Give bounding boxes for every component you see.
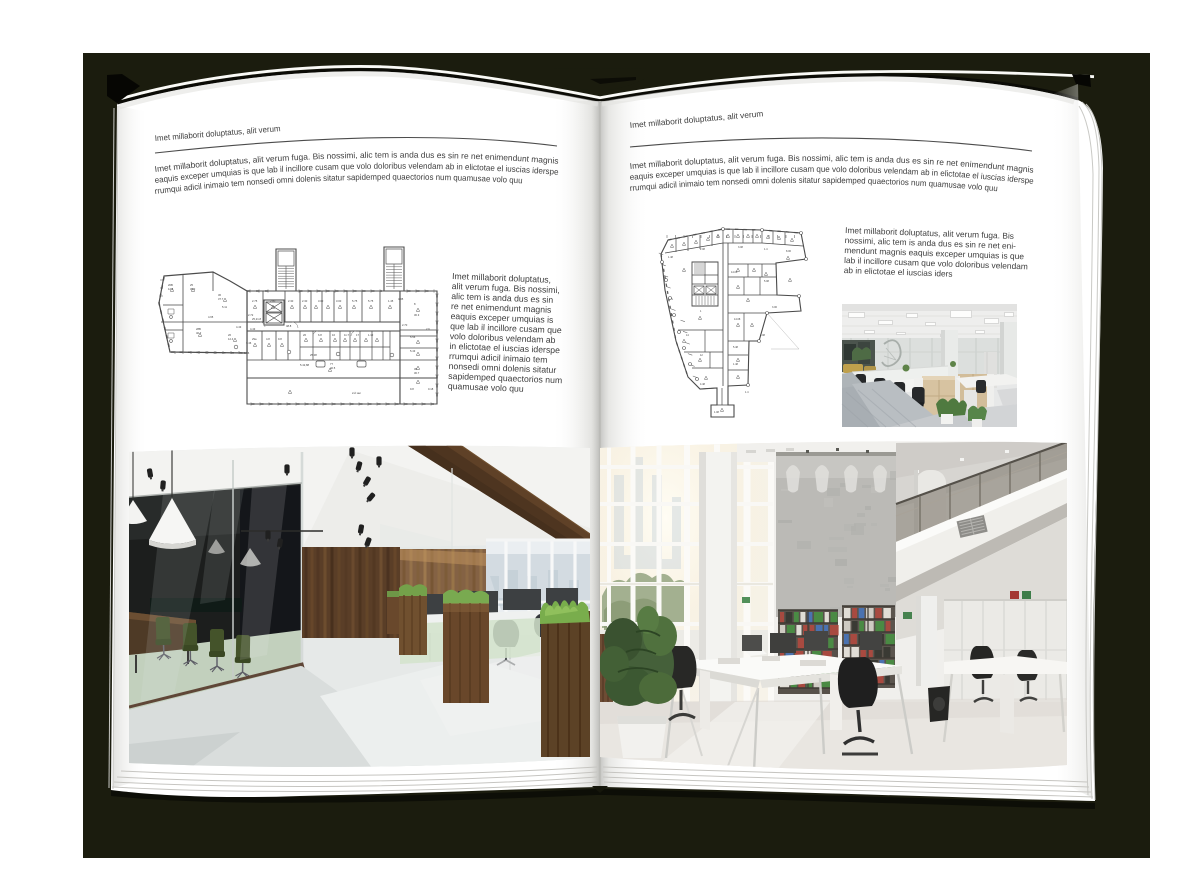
- svg-text:16: 16: [332, 333, 335, 337]
- svg-text:5.08: 5.08: [764, 280, 769, 283]
- svg-text:3.46: 3.46: [246, 341, 252, 345]
- svg-text:2.08: 2.08: [700, 248, 705, 251]
- svg-text:4.43: 4.43: [250, 327, 256, 331]
- svg-text:17: 17: [356, 333, 359, 337]
- svg-text:9.8: 9.8: [278, 337, 282, 341]
- svg-text:2.72: 2.72: [248, 313, 254, 317]
- svg-text:12.4: 12.4: [228, 337, 234, 341]
- svg-text:25.08: 25.08: [310, 353, 317, 357]
- svg-text:2.80: 2.80: [270, 299, 276, 303]
- svg-text:14.06: 14.06: [731, 271, 738, 274]
- svg-text:5.75: 5.75: [352, 299, 358, 303]
- svg-text:3.06: 3.06: [772, 306, 777, 309]
- svg-text:5.43: 5.43: [410, 349, 416, 353]
- svg-text:5.75: 5.75: [368, 299, 374, 303]
- svg-text:1.45: 1.45: [388, 299, 394, 303]
- svg-text:28B: 28B: [196, 327, 201, 331]
- svg-text:4.43: 4.43: [236, 325, 242, 329]
- svg-text:30.3: 30.3: [414, 313, 420, 317]
- svg-text:2.30: 2.30: [288, 299, 294, 303]
- svg-text:11.7: 11.7: [344, 333, 350, 337]
- svg-text:5.56: 5.56: [410, 335, 416, 339]
- svg-text:36: 36: [414, 367, 417, 371]
- svg-text:2.75: 2.75: [252, 299, 258, 303]
- svg-text:30.7: 30.7: [414, 371, 420, 375]
- svg-text:29a: 29a: [252, 337, 257, 341]
- svg-text:25,21.8: 25,21.8: [252, 317, 261, 321]
- svg-text:1.4: 1.4: [764, 248, 768, 251]
- svg-text:30.2: 30.2: [190, 287, 196, 291]
- svg-text:1.08: 1.08: [714, 411, 719, 414]
- svg-text:3.96: 3.96: [244, 351, 250, 355]
- svg-text:26: 26: [303, 333, 306, 337]
- svg-text:40.7: 40.7: [196, 331, 202, 335]
- svg-text:20B: 20B: [168, 283, 173, 287]
- svg-text:37.7: 37.7: [218, 297, 224, 301]
- svg-text:2.70: 2.70: [402, 323, 408, 327]
- svg-text:26: 26: [228, 333, 231, 337]
- svg-text:5.42,88: 5.42,88: [300, 363, 309, 367]
- svg-text:77: 77: [330, 362, 333, 366]
- svg-text:1.12: 1.12: [368, 333, 374, 337]
- svg-text:48.8: 48.8: [286, 324, 292, 328]
- svg-text:2.6: 2.6: [426, 327, 430, 331]
- svg-text:8.06: 8.06: [786, 250, 791, 253]
- svg-text:4.08: 4.08: [760, 334, 765, 337]
- svg-text:3.08: 3.08: [738, 246, 743, 249]
- svg-text:6.8: 6.8: [318, 333, 322, 337]
- svg-text:1.4: 1.4: [745, 391, 749, 394]
- svg-text:4.65: 4.65: [208, 315, 214, 319]
- svg-text:1.48: 1.48: [733, 363, 738, 366]
- svg-text:40.5: 40.5: [330, 366, 336, 370]
- svg-text:36: 36: [218, 293, 221, 297]
- svg-text:12.6: 12.6: [168, 287, 174, 291]
- svg-text:1.48: 1.48: [668, 256, 673, 259]
- svg-text:4.35: 4.35: [398, 297, 404, 301]
- svg-text:5.11: 5.11: [222, 305, 228, 309]
- svg-text:14.08: 14.08: [734, 318, 741, 321]
- svg-text:9.8: 9.8: [410, 387, 414, 391]
- svg-text:4.8: 4.8: [266, 337, 270, 341]
- svg-text:2.30: 2.30: [302, 299, 308, 303]
- svg-text:5.48: 5.48: [733, 346, 738, 349]
- svg-text:0.18: 0.18: [428, 387, 434, 391]
- svg-text:25: 25: [190, 283, 193, 287]
- svg-text:3.00: 3.00: [318, 299, 324, 303]
- svg-text:2-й зал: 2-й зал: [352, 391, 361, 395]
- svg-text:4.48: 4.48: [700, 383, 705, 386]
- svg-text:3.00: 3.00: [336, 299, 342, 303]
